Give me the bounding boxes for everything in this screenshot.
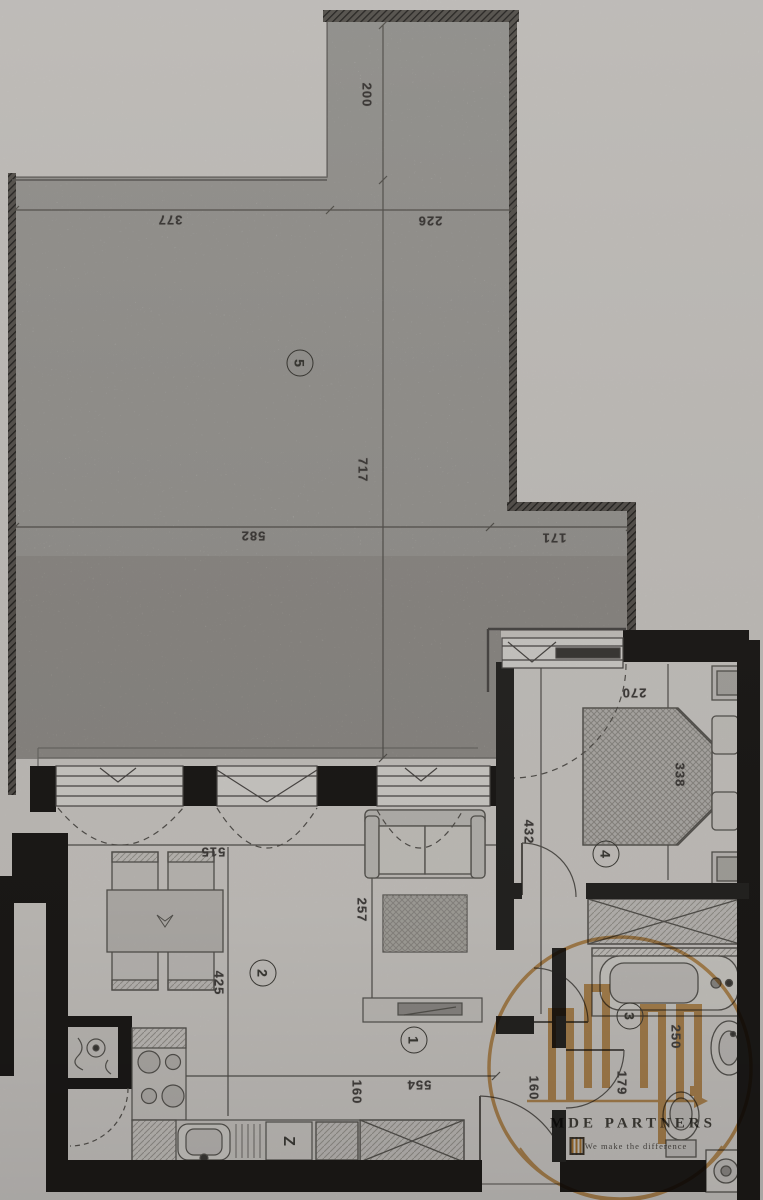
dim-bedroom-side: 432 [522, 820, 537, 845]
dim-bedroom-window: 270 [622, 686, 647, 701]
dim-terrace-width-left: 377 [158, 213, 183, 228]
dim-living-length: 425 [212, 971, 227, 996]
dim-terrace-width-lower: 582 [241, 529, 266, 544]
dim-terrace-step: 171 [542, 531, 567, 546]
room-number-1: 1 [401, 1027, 428, 1054]
floor-plan-drawing [0, 0, 763, 1200]
dim-hall-width: 160 [527, 1076, 542, 1101]
room-number-4: 4 [593, 841, 620, 868]
dim-living-width: 515 [201, 845, 226, 860]
room-number-3: 3 [617, 1003, 644, 1030]
dim-bath-length: 179 [615, 1071, 630, 1096]
dim-terrace-width-mid: 226 [418, 214, 443, 229]
dim-kitchen-gap: 160 [350, 1080, 365, 1105]
floor-plan-scan: 200 377 226 717 582 171 270 338 432 515 … [0, 0, 763, 1200]
dim-bottom-width: 554 [407, 1078, 432, 1093]
room-number-5: 5 [287, 350, 314, 377]
dim-terrace-height: 717 [356, 458, 371, 483]
dim-terrace-depth-top: 200 [360, 83, 375, 108]
dim-bedroom-length: 338 [673, 763, 688, 788]
watermark-mini-logo-icon [570, 1137, 585, 1155]
dishwasher-label: Z [279, 1136, 297, 1146]
dim-room1-length: 257 [355, 898, 370, 923]
watermark-brand: MDE PARTNERS [550, 1116, 716, 1133]
room-number-2: 2 [250, 960, 277, 987]
dim-bath-width: 250 [669, 1025, 684, 1050]
watermark-tagline: We make the difference [585, 1141, 688, 1151]
scan-shading [0, 0, 763, 1200]
